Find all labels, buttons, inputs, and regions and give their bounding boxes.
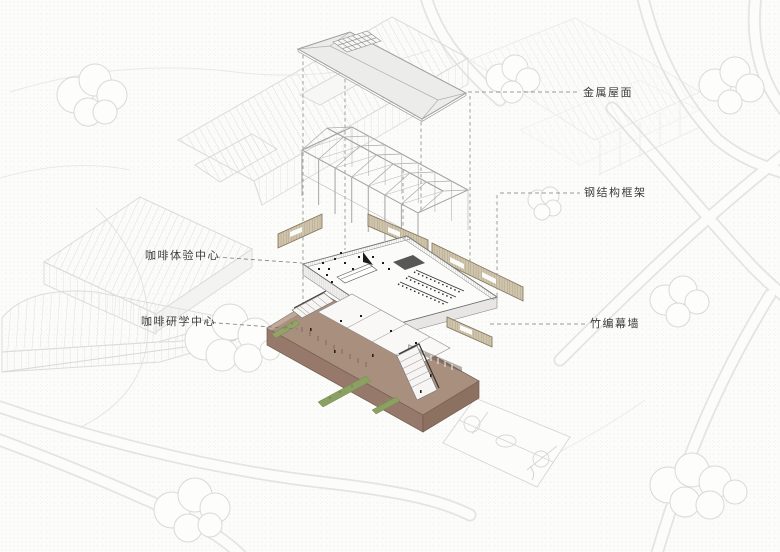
callout-coffee-experience-center: 咖啡体验中心 xyxy=(145,250,220,262)
exploded-axonometric-site-plan: 金属屋面 钢结构框架 咖啡体验中心 咖啡研学中心 竹编幕墙 xyxy=(0,0,780,552)
metal-roof-layer xyxy=(298,31,466,122)
callout-metal-roof: 金属屋面 xyxy=(583,87,633,99)
callout-steel-frame: 钢结构框架 xyxy=(584,187,647,199)
exploded-building-layer xyxy=(0,0,780,552)
callout-bamboo-curtain-wall: 竹编幕墙 xyxy=(590,318,640,330)
callout-coffee-study-center: 咖啡研学中心 xyxy=(141,316,216,328)
bamboo-panel-southeast xyxy=(447,317,492,347)
bamboo-panel-west xyxy=(278,214,322,248)
frame-web-diagonals xyxy=(302,137,443,204)
leader-coffee-experience xyxy=(216,257,302,263)
steel-frame-layer xyxy=(302,127,468,259)
